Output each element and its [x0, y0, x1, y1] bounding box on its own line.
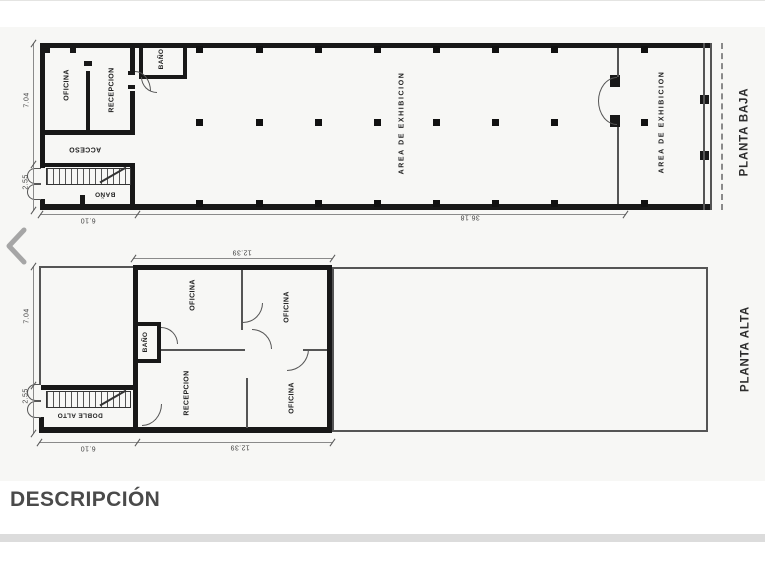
room-label-area-exhibicion: AREA DE EXHIBICION: [659, 71, 666, 174]
wall: [130, 48, 135, 71]
room-outline: [332, 267, 708, 432]
wall: [39, 385, 135, 390]
wall: [80, 195, 85, 209]
dimension-tick: [31, 207, 37, 215]
room-label-acceso: ACCESO: [69, 146, 101, 153]
dimension-line: [133, 258, 332, 259]
dimension-tick: [31, 430, 37, 438]
column-marker: [551, 46, 558, 53]
dimension-tick: [330, 439, 336, 447]
wall: [128, 85, 135, 89]
room-label-oficina: OFICINA: [190, 279, 197, 311]
dimension-label: 2.55: [23, 174, 30, 189]
wall: [40, 163, 135, 167]
dimension-tick: [330, 255, 336, 263]
wall: [130, 91, 135, 130]
column-marker: [256, 119, 263, 126]
column-marker: [196, 200, 203, 207]
dimension-label: 12.39: [232, 249, 252, 256]
column-marker: [641, 46, 648, 53]
dimension-line: [40, 214, 626, 215]
column-marker: [433, 200, 440, 207]
wall: [70, 48, 76, 53]
dimension-line: [39, 442, 332, 443]
wall: [39, 417, 44, 433]
wall: [40, 43, 45, 168]
wall: [40, 130, 135, 135]
floor-plan-image: OFICINA RECEPCION BAÑO ACCESO BAÑO AREA …: [0, 27, 765, 481]
column-marker: [641, 119, 648, 126]
property-line-dashed: [721, 43, 723, 210]
wall: [40, 199, 45, 210]
column-marker: [315, 200, 322, 207]
room-label-doble-alto: DOBLE ALTO: [57, 411, 102, 418]
room-label-recepcion: RECEPCION: [184, 370, 191, 415]
room-label-bano: BAÑO: [159, 49, 166, 70]
column-marker: [492, 200, 499, 207]
room-label-oficina: OFICINA: [289, 382, 296, 414]
room-label-oficina: OFICINA: [284, 291, 291, 323]
dimension-label: 2.55: [23, 388, 30, 403]
column-marker: [196, 119, 203, 126]
wall-thin: [617, 127, 619, 204]
dimension-label: 12.39: [230, 444, 250, 451]
dimension-label: 6.10: [80, 217, 95, 224]
wall-thin: [710, 43, 712, 210]
column-marker: [374, 46, 381, 53]
dimension-label: 7.04: [24, 308, 31, 323]
wall: [84, 61, 92, 66]
room-label-area-exhibicion: AREA DE EXHIBICION: [399, 72, 406, 175]
dimension-label: 36.18: [460, 214, 480, 221]
dimension-tick: [623, 211, 629, 219]
door-swing-arc: [598, 101, 617, 125]
wall-thin: [39, 266, 41, 385]
page-top-divider: [0, 0, 765, 1]
wall-thin: [39, 266, 135, 268]
wall-thin: [703, 43, 705, 210]
dimension-line: [33, 266, 34, 433]
column-marker: [315, 119, 322, 126]
plan-title-planta-alta: PLANTA ALTA: [740, 306, 752, 392]
dimension-label: 7.04: [24, 92, 31, 107]
room-label-oficina: OFICINA: [64, 69, 71, 101]
room-label-bano-lower: BAÑO: [95, 190, 116, 197]
column-marker: [315, 46, 322, 53]
section-divider: [0, 534, 765, 542]
previous-image-button[interactable]: [3, 226, 29, 266]
column-marker: [433, 46, 440, 53]
plan-title-planta-baja: PLANTA BAJA: [739, 88, 751, 177]
description-heading: DESCRIPCIÓN: [10, 488, 160, 512]
column-marker: [551, 200, 558, 207]
column-marker: [256, 200, 263, 207]
column-marker: [374, 119, 381, 126]
wall-thin: [617, 48, 619, 77]
chevron-left-icon: [3, 226, 29, 266]
dimension-line: [33, 43, 34, 210]
column-marker: [433, 119, 440, 126]
column-marker: [551, 119, 558, 126]
room-label-bano: BAÑO: [143, 332, 150, 353]
column-marker: [492, 46, 499, 53]
wall: [128, 71, 135, 75]
dimension-label: 6.10: [80, 445, 95, 452]
column-marker: [374, 200, 381, 207]
room-label-recepcion: RECEPCION: [109, 67, 116, 112]
column-marker: [492, 119, 499, 126]
column-marker: [256, 46, 263, 53]
door-swing-arc: [598, 77, 617, 101]
column-marker: [196, 46, 203, 53]
wall: [86, 71, 90, 130]
column-marker: [641, 200, 648, 207]
wall: [44, 48, 50, 53]
